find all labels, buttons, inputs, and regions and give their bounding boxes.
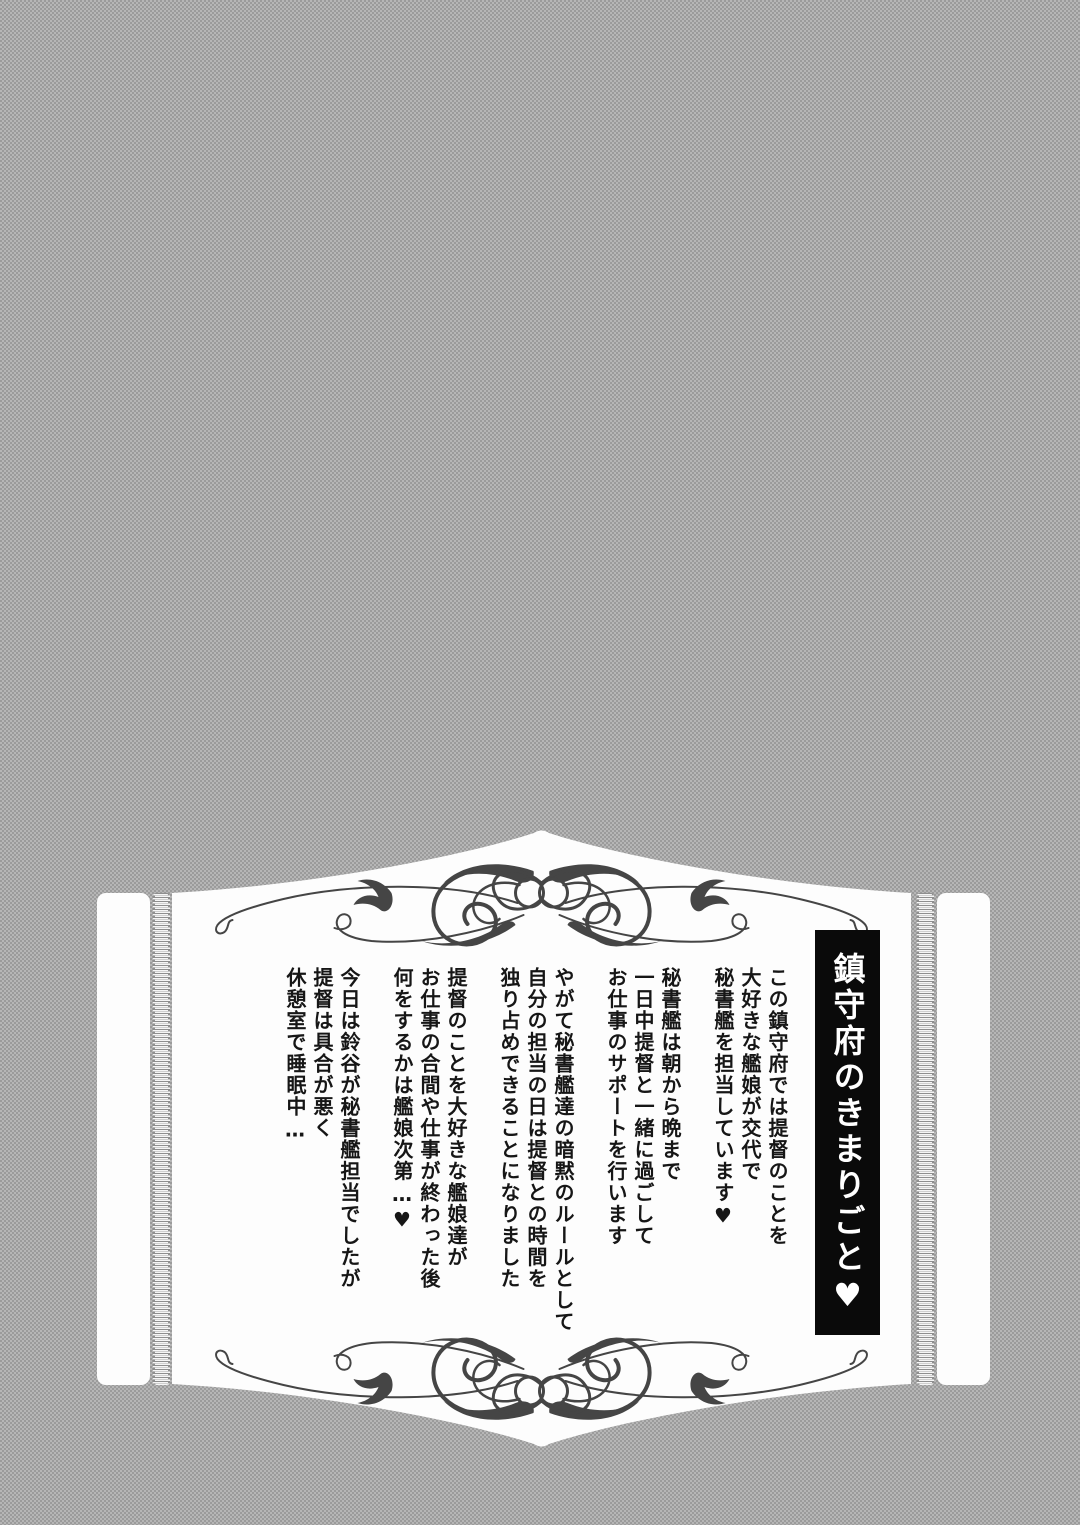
text-line: 秘書艦は朝から晩まで bbox=[656, 967, 683, 1349]
body-text: この鎮守府では提督のことを 大好きな艦娘が交代で 秘書艦を担当しています♥ 秘書… bbox=[281, 967, 790, 1349]
paragraph-group-3: やがて秘書艦達の暗黙のルールとして 自分の担当の日は提督との時間を 独り占めでき… bbox=[495, 967, 576, 1349]
title-text: 鎮守府のきまりごと♥ bbox=[832, 930, 864, 1335]
paragraph-group-1: この鎮守府では提督のことを 大好きな艦娘が交代で 秘書艦を担当しています♥ bbox=[709, 967, 790, 1349]
text-line: お仕事のサポートを行います bbox=[602, 967, 629, 1349]
text-line: 独り占めできることになりました bbox=[495, 967, 522, 1349]
text-line: やがて秘書艦達の暗黙のルールとして bbox=[549, 967, 576, 1349]
lace-border-left bbox=[153, 893, 170, 1385]
text-line: 休憩室で睡眠中… bbox=[281, 967, 308, 1349]
manga-page: 鎮守府のきまりごと♥ この鎮守府では提督のことを 大好きな艦娘が交代で 秘書艦を… bbox=[0, 0, 1080, 1525]
text-line: 一日中提督と一緒に過ごして bbox=[629, 967, 656, 1349]
text-line: お仕事の合間や仕事が終わった後 bbox=[415, 967, 442, 1349]
text-line: 提督は具合が悪く bbox=[308, 967, 335, 1349]
paragraph-group-5: 今日は鈴谷が秘書艦担当でしたが 提督は具合が悪く 休憩室で睡眠中… bbox=[281, 967, 362, 1349]
text-line: 何をするかは艦娘次第…♥ bbox=[388, 967, 415, 1349]
side-strip-left bbox=[97, 893, 150, 1385]
side-strip-right bbox=[937, 893, 990, 1385]
paragraph-group-2: 秘書艦は朝から晩まで 一日中提督と一緒に過ごして お仕事のサポートを行います bbox=[602, 967, 683, 1349]
text-line: 今日は鈴谷が秘書艦担当でしたが bbox=[335, 967, 362, 1349]
text-line: 秘書艦を担当しています♥ bbox=[709, 967, 736, 1349]
text-line: この鎮守府では提督のことを bbox=[763, 967, 790, 1349]
lace-border-right bbox=[917, 893, 934, 1385]
text-line: 大好きな艦娘が交代で bbox=[736, 967, 763, 1349]
title-box: 鎮守府のきまりごと♥ bbox=[815, 930, 880, 1335]
text-line: 提督のことを大好きな艦娘達が bbox=[442, 967, 469, 1349]
paragraph-group-4: 提督のことを大好きな艦娘達が お仕事の合間や仕事が終わった後 何をするかは艦娘次… bbox=[388, 967, 469, 1349]
decorative-panel: 鎮守府のきまりごと♥ この鎮守府では提督のことを 大好きな艦娘が交代で 秘書艦を… bbox=[97, 827, 990, 1450]
text-line: 自分の担当の日は提督との時間を bbox=[522, 967, 549, 1349]
